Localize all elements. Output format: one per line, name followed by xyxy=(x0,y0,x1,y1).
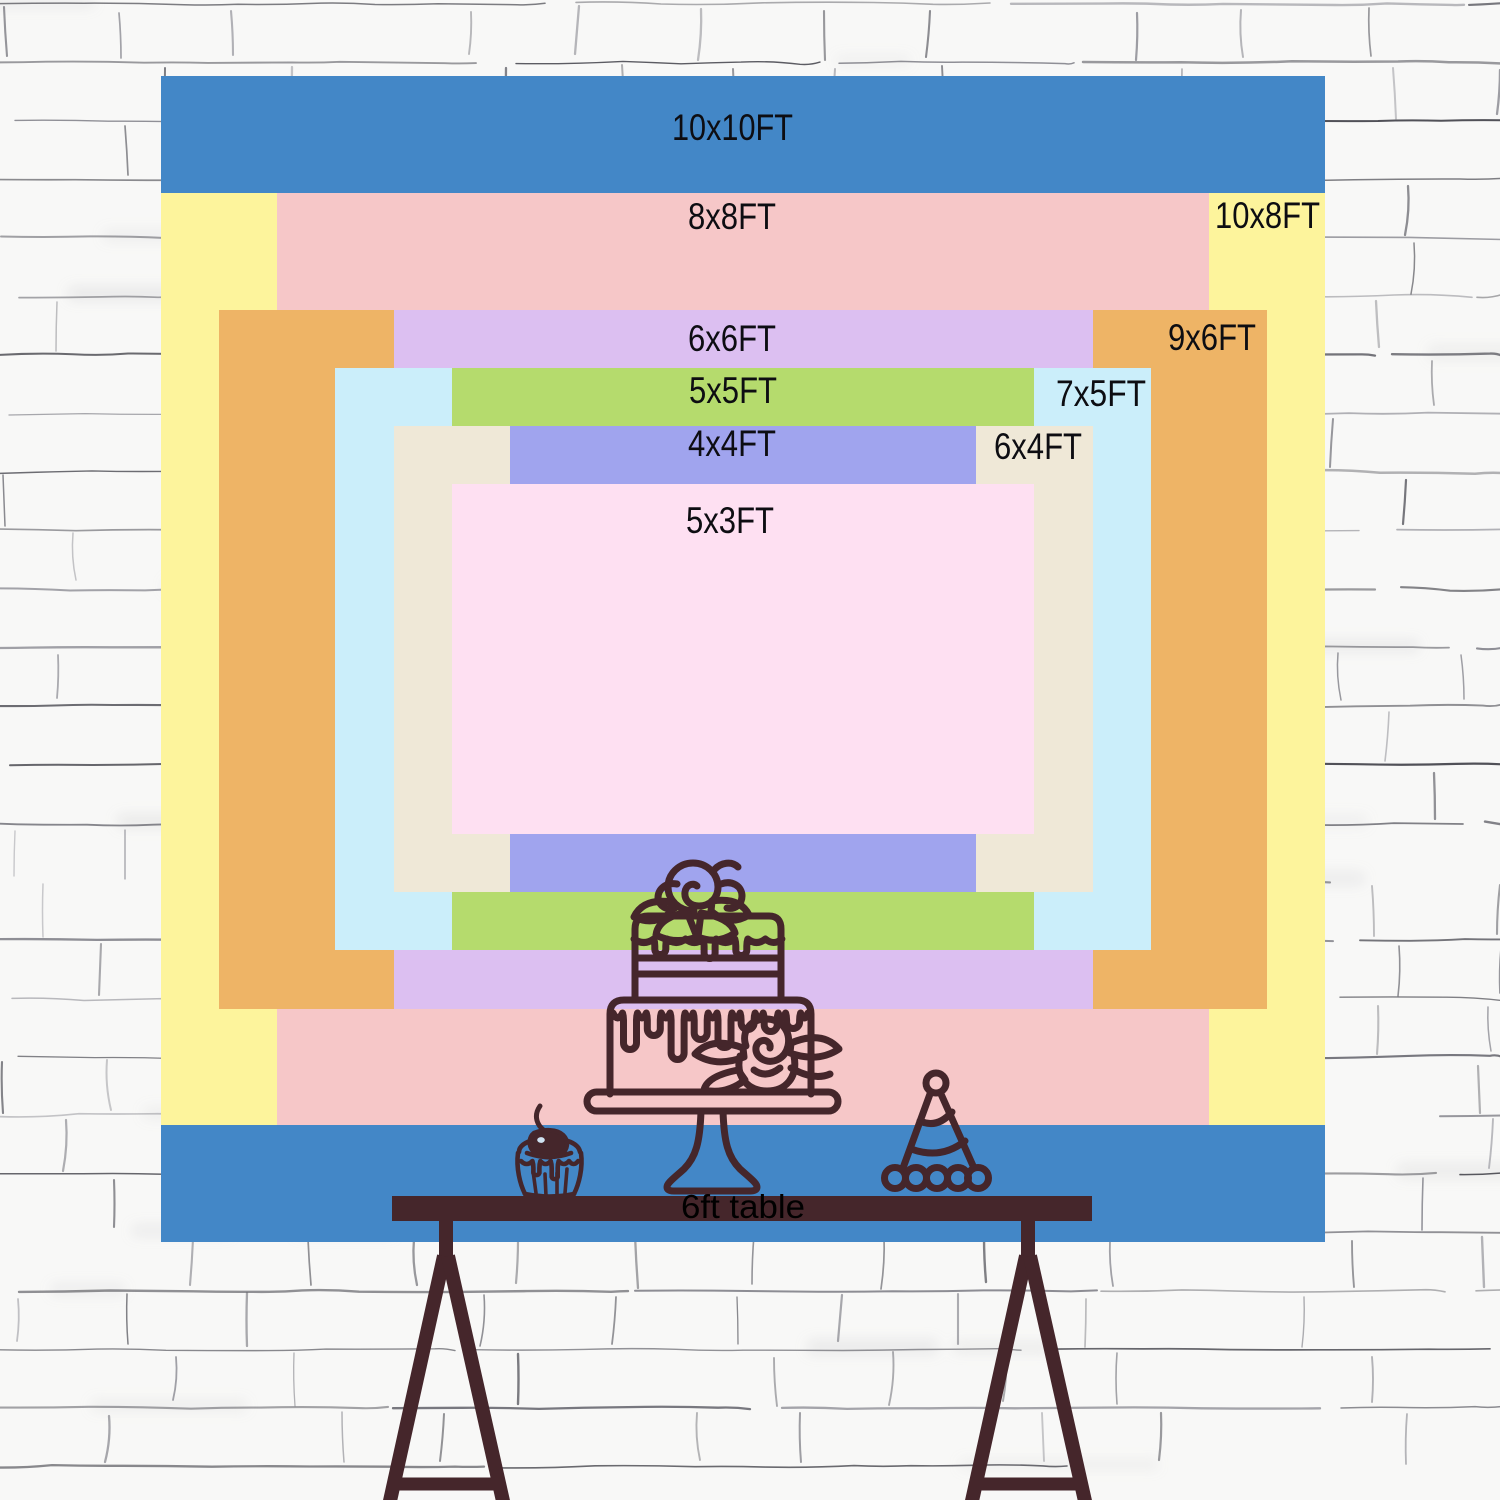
svg-text:10x8FT: 10x8FT xyxy=(1215,195,1320,236)
svg-text:7x5FT: 7x5FT xyxy=(1056,373,1146,414)
svg-text:6x4FT: 6x4FT xyxy=(994,426,1082,467)
svg-text:5x3FT: 5x3FT xyxy=(686,500,774,541)
svg-text:4x4FT: 4x4FT xyxy=(688,423,776,464)
svg-text:6x6FT: 6x6FT xyxy=(688,318,776,359)
svg-text:6ft table: 6ft table xyxy=(681,1188,805,1225)
svg-text:8x8FT: 8x8FT xyxy=(688,196,776,237)
svg-text:10x10FT: 10x10FT xyxy=(672,107,793,148)
svg-text:5x5FT: 5x5FT xyxy=(689,370,777,411)
svg-text:9x6FT: 9x6FT xyxy=(1168,317,1256,358)
